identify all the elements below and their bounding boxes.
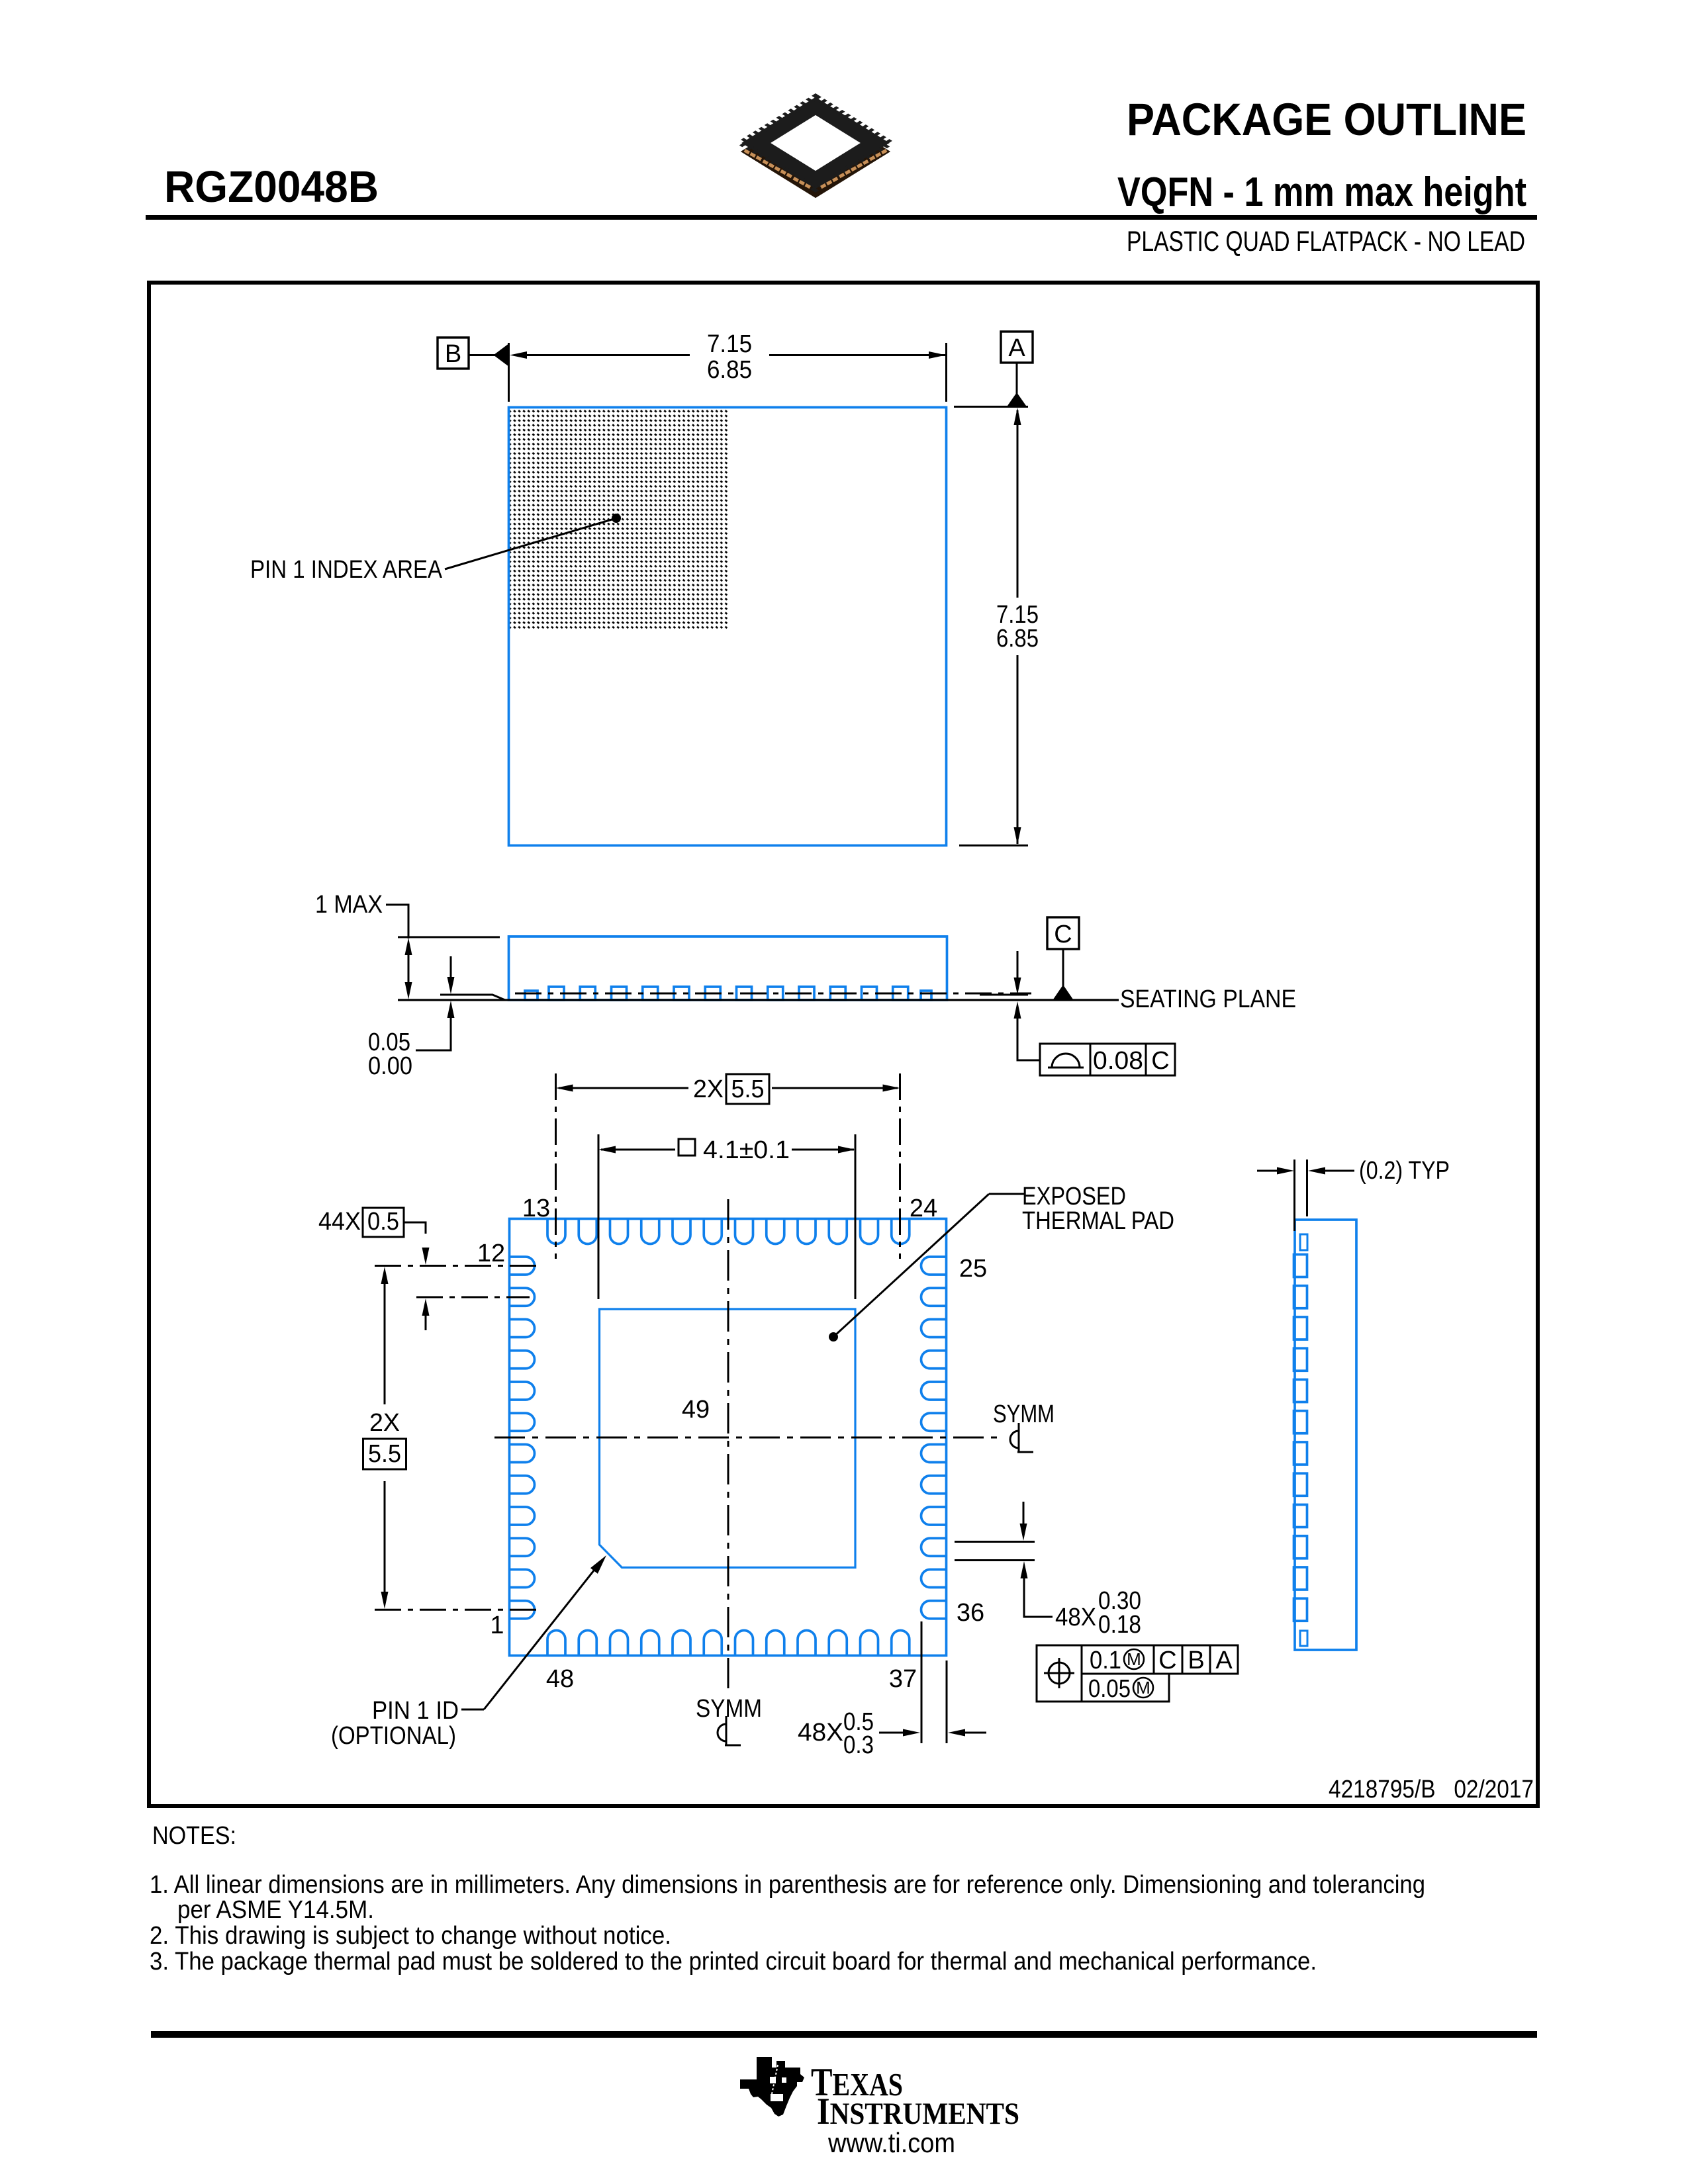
svg-text:5.5: 5.5 (731, 1075, 765, 1103)
svg-text:PIN 1 ID: PIN 1 ID (372, 1697, 459, 1725)
svg-text:PACKAGE OUTLINE: PACKAGE OUTLINE (1127, 94, 1526, 145)
svg-text:4218795/B 02/2017: 4218795/B 02/2017 (1329, 1776, 1534, 1803)
svg-text:0.1: 0.1 (1090, 1647, 1121, 1674)
svg-text:1: 1 (490, 1612, 504, 1639)
svg-text:12: 12 (477, 1240, 505, 1267)
svg-text:RGZ0048B: RGZ0048B (164, 162, 379, 212)
svg-text:0.18: 0.18 (1098, 1611, 1141, 1639)
svg-text:44X: 44X (318, 1208, 361, 1236)
svg-text:36: 36 (957, 1599, 984, 1627)
svg-text:24: 24 (910, 1195, 937, 1222)
svg-text:VQFN - 1 mm max height: VQFN - 1 mm max height (1117, 169, 1526, 215)
svg-text:C: C (1151, 1047, 1169, 1075)
svg-text:13: 13 (522, 1195, 550, 1222)
svg-text:M: M (1136, 1678, 1150, 1698)
svg-text:5.5: 5.5 (368, 1440, 401, 1468)
svg-text:C: C (1054, 921, 1072, 948)
svg-text:SEATING PLANE: SEATING PLANE (1120, 985, 1296, 1013)
svg-text:6.85: 6.85 (707, 356, 752, 384)
svg-text:PIN 1 INDEX AREA: PIN 1 INDEX AREA (250, 556, 443, 584)
svg-text:per ASME Y14.5M.: per ASME Y14.5M. (177, 1896, 374, 1924)
svg-text:www.ti.com: www.ti.com (827, 2127, 955, 2158)
svg-text:(OPTIONAL): (OPTIONAL) (331, 1722, 456, 1750)
svg-text:37: 37 (889, 1665, 917, 1693)
svg-text:THERMAL PAD: THERMAL PAD (1022, 1207, 1174, 1235)
svg-text:A: A (1215, 1647, 1233, 1674)
svg-text:C: C (1158, 1647, 1176, 1674)
svg-text:M: M (1127, 1649, 1141, 1669)
svg-text:2X: 2X (369, 1409, 400, 1437)
svg-text:7.15: 7.15 (707, 330, 752, 358)
svg-text:3. The package thermal pad mus: 3. The package thermal pad must be solde… (150, 1948, 1317, 1976)
svg-text:B: B (1188, 1647, 1204, 1674)
svg-text:SYMM: SYMM (696, 1695, 762, 1723)
svg-text:EXPOSED: EXPOSED (1022, 1183, 1126, 1210)
svg-text:0.08: 0.08 (1093, 1047, 1143, 1075)
svg-text:1 MAX: 1 MAX (315, 891, 383, 919)
svg-text:(0.2) TYP: (0.2) TYP (1359, 1157, 1450, 1185)
svg-text:0.3: 0.3 (843, 1731, 874, 1759)
svg-text:48: 48 (546, 1665, 574, 1693)
svg-text:2X: 2X (693, 1075, 724, 1103)
svg-text:SYMM: SYMM (993, 1400, 1055, 1428)
svg-text:49: 49 (682, 1396, 710, 1424)
svg-text:A: A (1008, 334, 1025, 362)
svg-text:NOTES:: NOTES: (152, 1822, 236, 1850)
svg-text:2. This drawing is subject to: 2. This drawing is subject to change wit… (150, 1922, 671, 1950)
svg-text:1. All linear dimensions are i: 1. All linear dimensions are in millimet… (150, 1871, 1425, 1899)
svg-text:4.1±0.1: 4.1±0.1 (703, 1136, 790, 1164)
svg-text:B: B (445, 340, 461, 368)
svg-text:48X: 48X (798, 1719, 843, 1747)
svg-text:INSTRUMENTS: INSTRUMENTS (817, 2091, 1019, 2132)
svg-text:48X: 48X (1055, 1604, 1096, 1631)
svg-text:6.85: 6.85 (996, 625, 1039, 653)
svg-text:0.5: 0.5 (367, 1208, 399, 1236)
svg-text:0.00: 0.00 (368, 1052, 412, 1080)
svg-text:PLASTIC QUAD FLATPACK - NO LEA: PLASTIC QUAD FLATPACK - NO LEAD (1127, 226, 1525, 257)
svg-text:25: 25 (959, 1255, 987, 1283)
svg-text:0.05: 0.05 (1088, 1675, 1131, 1703)
